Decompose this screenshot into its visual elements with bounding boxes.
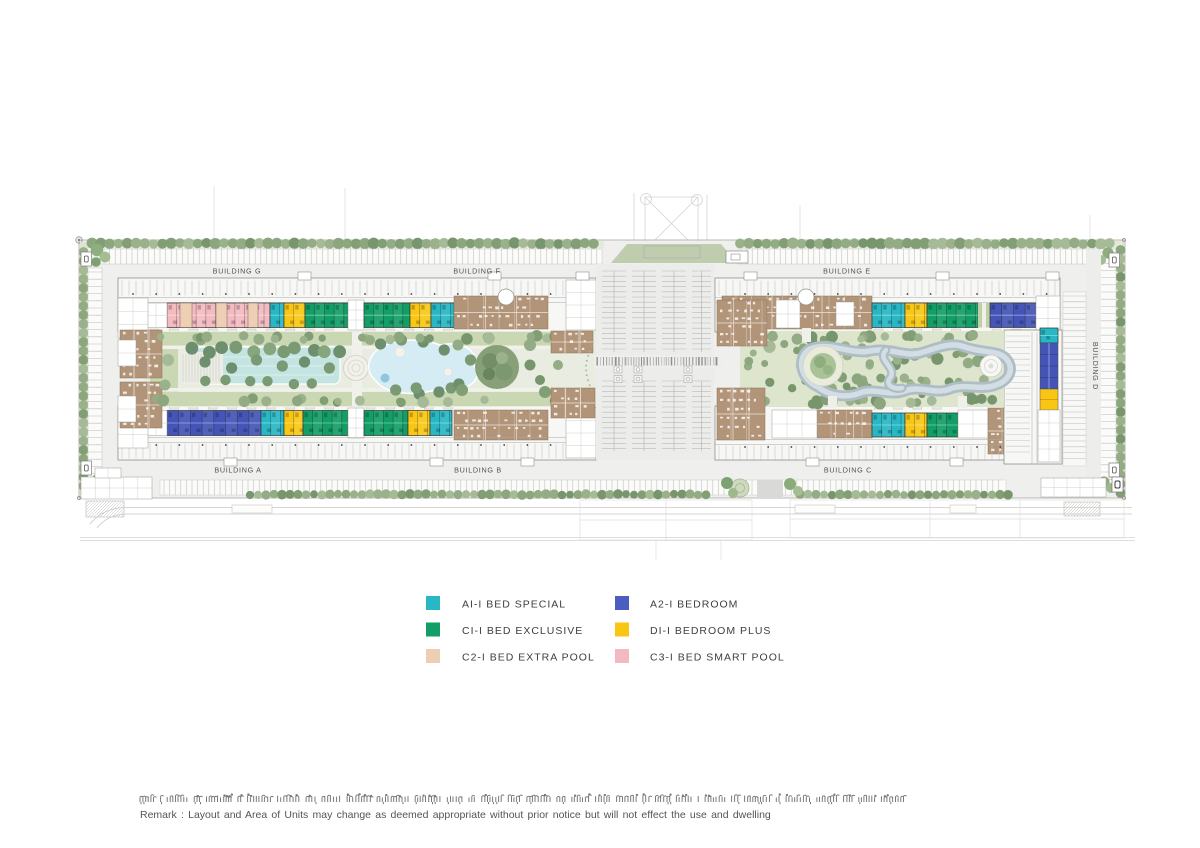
svg-text:BUILDING E: BUILDING E — [823, 267, 871, 276]
svg-text:BUILDING B: BUILDING B — [454, 466, 502, 475]
svg-text:AI-I BED SPECIAL: AI-I BED SPECIAL — [462, 599, 566, 611]
svg-text:C2-I BED EXTRA POOL: C2-I BED EXTRA POOL — [462, 652, 595, 664]
svg-text:BUILDING D: BUILDING D — [1091, 342, 1100, 390]
svg-text:BUILDING F: BUILDING F — [453, 267, 500, 276]
svg-text:Remark : Layout and Area of Un: Remark : Layout and Area of Units may ch… — [140, 809, 771, 821]
svg-text:BUILDING C: BUILDING C — [824, 466, 872, 475]
svg-text:C3-I BED SMART POOL: C3-I BED SMART POOL — [650, 652, 785, 664]
svg-text:DI-I BEDROOM PLUS: DI-I BEDROOM PLUS — [650, 625, 771, 637]
svg-text:CI-I BED EXCLUSIVE: CI-I BED EXCLUSIVE — [462, 625, 583, 637]
svg-text:A2-I BEDROOM: A2-I BEDROOM — [650, 599, 738, 611]
svg-text:BUILDING G: BUILDING G — [213, 267, 262, 276]
svg-text:BUILDING A: BUILDING A — [214, 466, 261, 475]
